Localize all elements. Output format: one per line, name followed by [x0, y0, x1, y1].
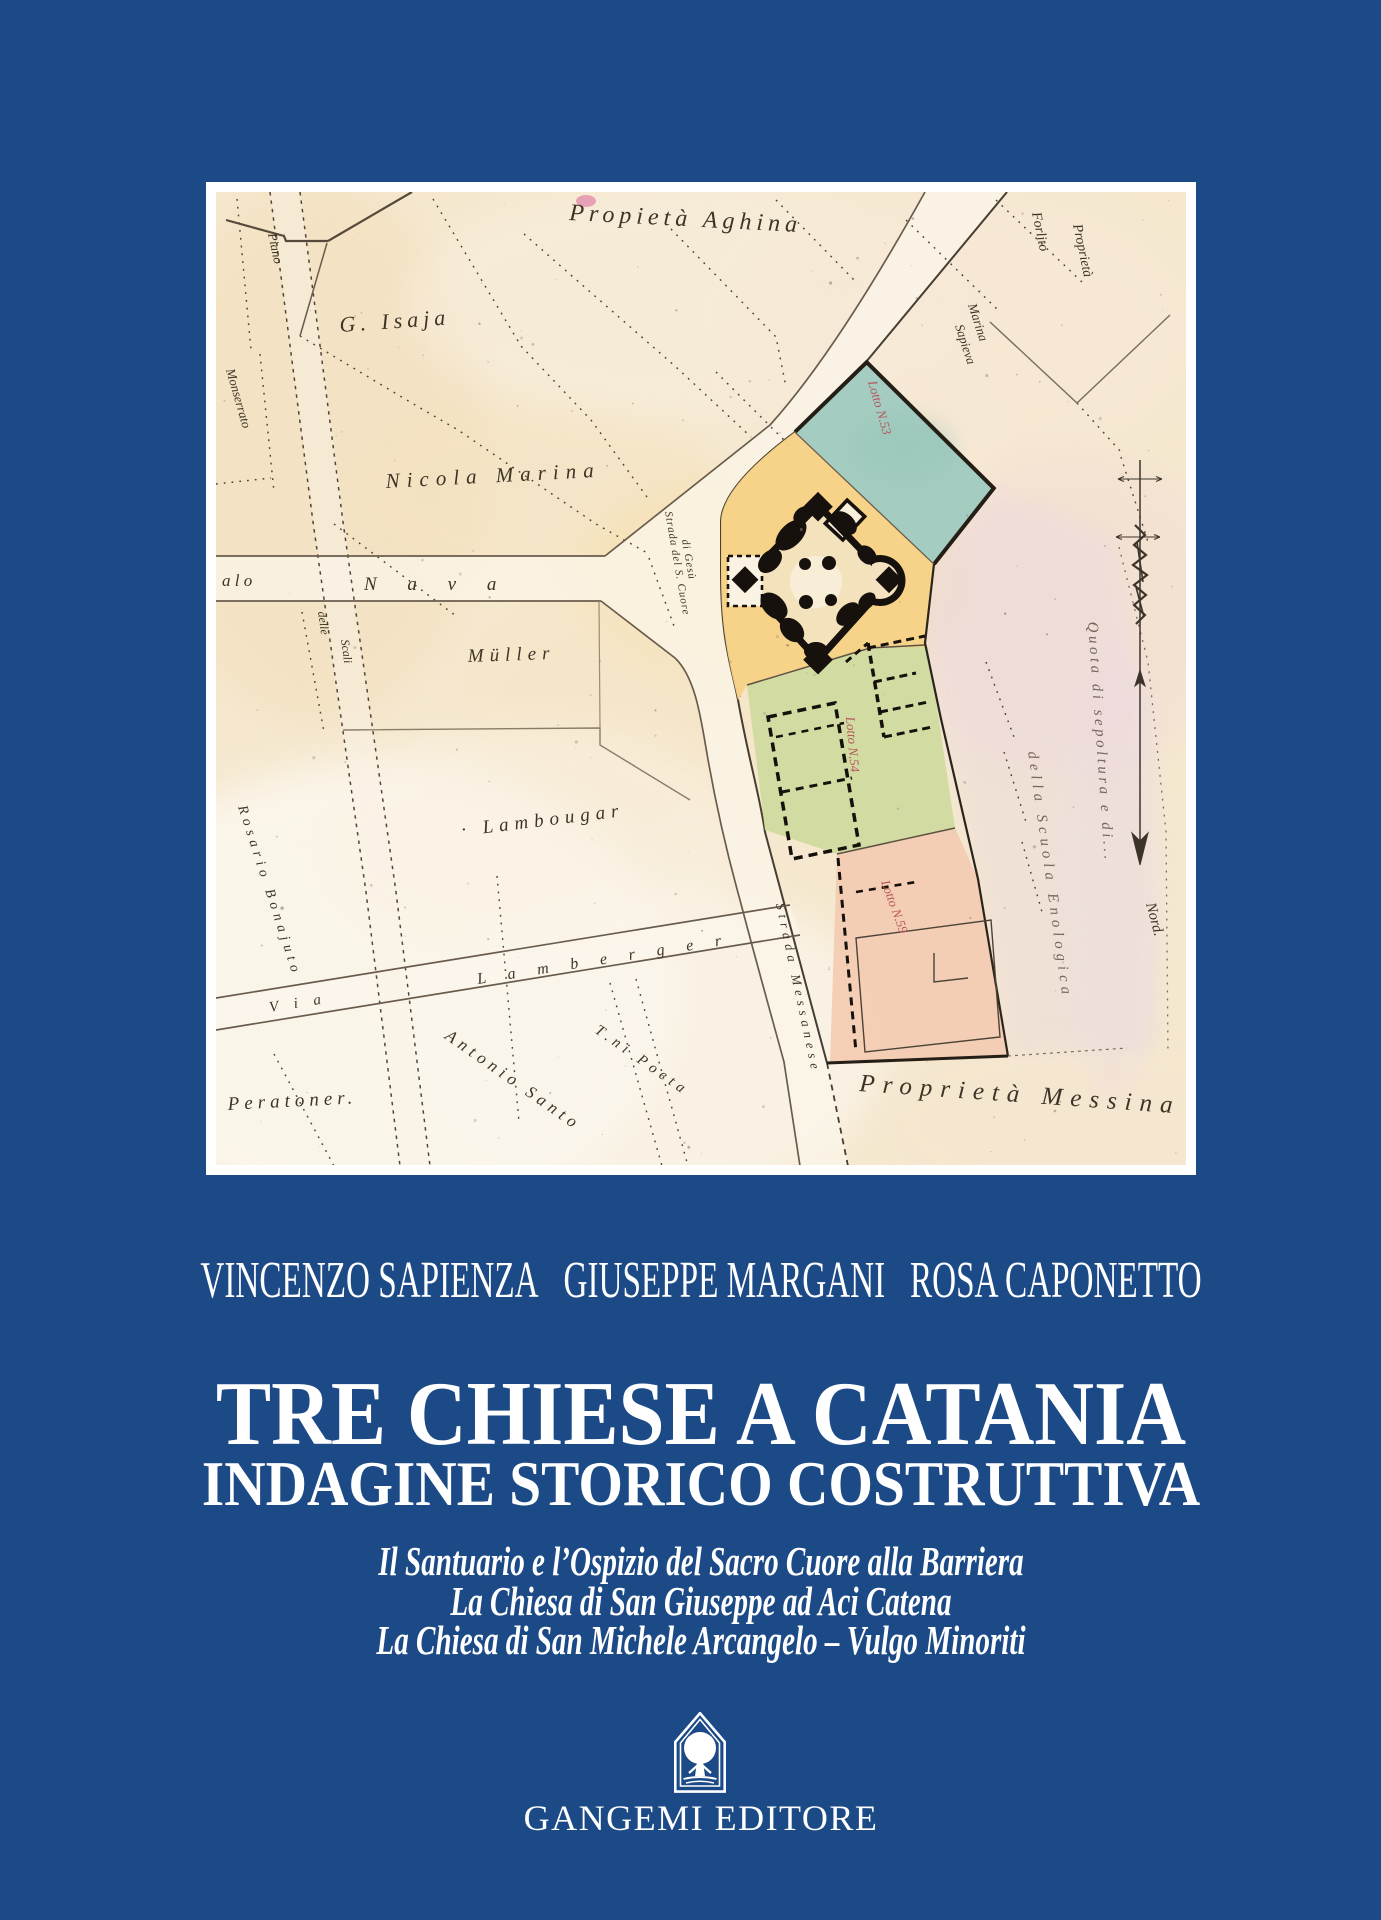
svg-text:a l o: a l o: [222, 571, 252, 590]
svg-text:Müller: Müller: [466, 643, 555, 667]
svg-text:N a v a: N a v a: [363, 574, 509, 595]
